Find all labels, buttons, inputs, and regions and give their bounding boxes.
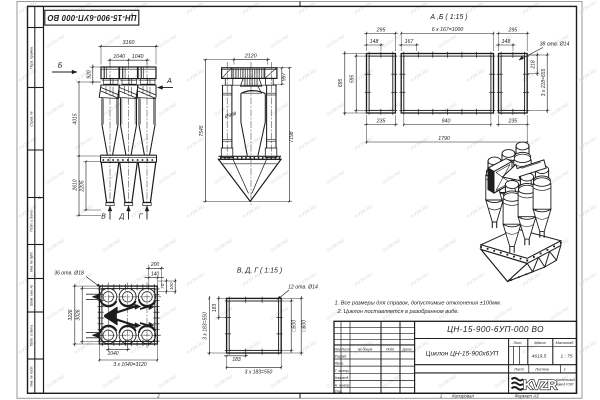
svg-text:218: 218 <box>531 60 537 70</box>
svg-text:1: 1 <box>564 368 566 372</box>
svg-text:завод РЭП: завод РЭП <box>555 383 574 387</box>
svg-text:1040: 1040 <box>113 54 125 60</box>
svg-text:940: 940 <box>442 118 451 124</box>
svg-text:Лист: Лист <box>340 347 350 351</box>
svg-text:6 х 167=1000: 6 х 167=1000 <box>432 27 464 33</box>
svg-text:997: 997 <box>282 73 288 82</box>
svg-text:Лит.: Лит. <box>513 341 523 345</box>
svg-text:Н. контр.: Н. контр. <box>335 383 350 387</box>
svg-text:Справ. №: Справ. № <box>29 111 33 127</box>
svg-text:Б: Б <box>58 63 63 70</box>
svg-text:Т. контр.: Т. контр. <box>335 369 350 373</box>
svg-text:ЦН-15-900-6УП-000 ВО: ЦН-15-900-6УП-000 ВО <box>447 325 544 334</box>
svg-text:920: 920 <box>86 70 92 79</box>
svg-text:200: 200 <box>150 262 160 268</box>
svg-text:ЦН-15-900-6УП-000 ВО: ЦН-15-900-6УП-000 ВО <box>47 13 136 22</box>
svg-text:2: 2 <box>156 394 160 399</box>
svg-text:295: 295 <box>507 27 517 33</box>
svg-text:Инв. № дубл.: Инв. № дубл. <box>29 251 33 272</box>
svg-text:2205: 2205 <box>80 180 86 192</box>
svg-text:3 х 218=655: 3 х 218=655 <box>541 68 547 96</box>
svg-text:148: 148 <box>502 39 511 45</box>
svg-text:Дата: Дата <box>402 347 412 351</box>
svg-text:235: 235 <box>376 118 386 124</box>
svg-text:А ,Б ( 1:15 ): А ,Б ( 1:15 ) <box>429 14 467 21</box>
svg-text:235: 235 <box>507 118 517 124</box>
svg-text:Перв. примен.: Перв. примен. <box>29 46 33 69</box>
svg-text:695: 695 <box>338 79 344 88</box>
svg-text:□500: □500 <box>292 320 298 332</box>
svg-text:4619,5: 4619,5 <box>532 354 547 360</box>
svg-text:Масштаб: Масштаб <box>556 341 575 345</box>
svg-text:В: В <box>101 214 106 221</box>
svg-text:183: 183 <box>232 357 241 363</box>
svg-text:1790: 1790 <box>438 136 450 142</box>
svg-text:Инв. № подл.: Инв. № подл. <box>29 366 33 387</box>
svg-text:4015: 4015 <box>72 113 78 124</box>
svg-text:Котельный: Котельный <box>556 378 575 382</box>
svg-text:2. Циклон поставляется в разоб: 2. Циклон поставляется в разобранном вид… <box>337 309 460 315</box>
svg-text:Циклон ЦН-15-900х6УП: Циклон ЦН-15-900х6УП <box>426 350 499 357</box>
svg-text:3226: 3226 <box>68 309 74 320</box>
svg-text:1040: 1040 <box>132 54 144 60</box>
svg-text:В, Д, Г ( 1:15 ): В, Д, Г ( 1:15 ) <box>237 267 282 274</box>
svg-text:А: А <box>37 195 41 200</box>
svg-text:295: 295 <box>376 27 386 33</box>
svg-text:2120: 2120 <box>244 53 257 59</box>
svg-text:Нач.отд.: Нач.отд. <box>335 376 349 380</box>
svg-text:3026: 3026 <box>76 309 82 320</box>
svg-text:□600: □600 <box>302 320 308 332</box>
svg-text:Масса: Масса <box>534 341 545 345</box>
svg-text:1. Все размеры для справок, до: 1. Все размеры для справок, допустимые о… <box>335 301 502 307</box>
svg-text:7198: 7198 <box>289 131 295 142</box>
svg-text:148: 148 <box>370 39 379 45</box>
svg-text:Подп. и дата: Подп. и дата <box>29 325 33 346</box>
svg-text:3160: 3160 <box>123 40 135 46</box>
svg-text:№ докум.: № докум. <box>358 347 373 351</box>
svg-text:1040: 1040 <box>107 351 118 357</box>
svg-text:Копировал: Копировал <box>452 393 474 398</box>
svg-text:Взам. инв. №: Взам. инв. № <box>29 284 33 305</box>
svg-text:Формат А3: Формат А3 <box>514 393 539 398</box>
svg-text:Подп. и дата: Подп. и дата <box>29 210 33 231</box>
svg-text:Д: Д <box>119 214 125 221</box>
svg-text:3 х 183=550: 3 х 183=550 <box>203 312 209 340</box>
svg-text:7545: 7545 <box>199 125 205 136</box>
svg-text:Изм: Изм <box>335 347 342 351</box>
svg-text:2610: 2610 <box>72 179 78 191</box>
svg-text:167: 167 <box>405 39 415 45</box>
svg-text:70: 70 <box>160 283 165 289</box>
svg-text:12 отв. Ø14: 12 отв. Ø14 <box>288 284 318 290</box>
svg-text:3 х 1040=3120: 3 х 1040=3120 <box>113 362 146 368</box>
svg-text:183: 183 <box>212 304 218 313</box>
svg-text:KVZR: KVZR <box>523 377 557 393</box>
svg-text:Листов: Листов <box>534 368 549 372</box>
svg-text:Утв.: Утв. <box>335 390 343 394</box>
svg-text:3 х 183=550: 3 х 183=550 <box>245 369 273 375</box>
svg-text:140: 140 <box>151 272 160 278</box>
svg-text:Лист: Лист <box>513 368 524 372</box>
svg-text:100: 100 <box>169 282 174 290</box>
svg-text:36 отв. Ø18: 36 отв. Ø18 <box>54 271 84 277</box>
svg-text:595: 595 <box>350 75 356 84</box>
svg-text:Разраб.: Разраб. <box>335 355 347 359</box>
svg-text:Подп.: Подп. <box>386 347 395 351</box>
svg-text:А: А <box>166 78 172 85</box>
svg-text:Пров.: Пров. <box>335 362 344 366</box>
svg-text:38 отв. Ø14: 38 отв. Ø14 <box>540 42 570 48</box>
svg-text:1 : 75: 1 : 75 <box>560 354 572 360</box>
